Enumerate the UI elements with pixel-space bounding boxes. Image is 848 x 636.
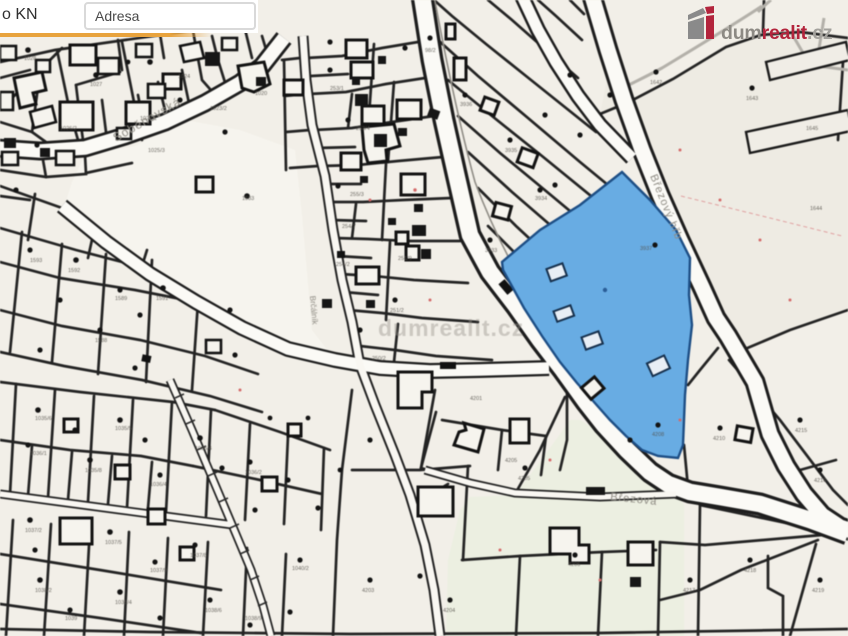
svg-text:1035/4: 1035/4	[195, 446, 212, 452]
svg-text:dumrealit.cz: dumrealit.cz	[378, 315, 524, 341]
svg-text:1020: 1020	[255, 91, 267, 97]
svg-text:1026/2: 1026/2	[60, 126, 77, 132]
svg-text:4217: 4217	[683, 588, 695, 594]
svg-text:4210: 4210	[713, 436, 725, 442]
svg-text:1039: 1039	[65, 616, 77, 622]
svg-text:1645: 1645	[806, 126, 818, 132]
svg-text:251/2: 251/2	[390, 308, 404, 314]
svg-text:1035/8: 1035/8	[85, 468, 102, 474]
svg-text:4206: 4206	[568, 562, 580, 568]
svg-text:255/3: 255/3	[350, 192, 364, 198]
svg-text:1025/1: 1025/1	[140, 116, 157, 122]
svg-text:1038/2: 1038/2	[35, 588, 52, 594]
svg-text:1037/5: 1037/5	[105, 540, 122, 546]
svg-text:1036/1: 1036/1	[30, 451, 47, 457]
svg-text:253/1: 253/1	[330, 86, 344, 92]
svg-text:98/2: 98/2	[425, 48, 436, 54]
svg-text:253/4: 253/4	[356, 126, 370, 132]
svg-text:1035/5: 1035/5	[115, 426, 132, 432]
svg-text:254/2: 254/2	[336, 262, 350, 268]
svg-text:1037/8: 1037/8	[190, 553, 207, 559]
svg-text:1592: 1592	[68, 268, 80, 274]
svg-text:4203: 4203	[362, 588, 374, 594]
svg-text:1025/3: 1025/3	[148, 148, 165, 154]
svg-text:4215: 4215	[795, 428, 807, 434]
svg-text:4204: 4204	[443, 608, 455, 614]
svg-text:4205: 4205	[518, 476, 530, 482]
svg-text:4208: 4208	[652, 432, 664, 438]
svg-text:1644: 1644	[810, 206, 822, 212]
svg-text:1591: 1591	[156, 296, 168, 302]
svg-text:3935: 3935	[505, 148, 517, 154]
svg-text:4218: 4218	[744, 568, 756, 574]
svg-text:dumrealit.cz: dumrealit.cz	[721, 22, 833, 42]
svg-text:3936: 3936	[460, 102, 472, 108]
svg-text:1583: 1583	[242, 196, 254, 202]
svg-text:1024: 1024	[178, 74, 190, 80]
svg-text:1038/6: 1038/6	[205, 608, 222, 614]
svg-text:4216: 4216	[814, 478, 826, 484]
svg-text:1589: 1589	[115, 296, 127, 302]
svg-text:1588: 1588	[95, 338, 107, 344]
svg-text:1037/2: 1037/2	[25, 528, 42, 534]
svg-text:1593: 1593	[30, 258, 42, 264]
svg-text:1643: 1643	[746, 96, 758, 102]
svg-text:1028: 1028	[24, 56, 36, 62]
svg-text:1027: 1027	[90, 82, 102, 88]
svg-text:1038/9: 1038/9	[245, 616, 262, 622]
svg-text:1642: 1642	[650, 80, 662, 86]
svg-text:250/2: 250/2	[372, 356, 386, 362]
svg-text:4201: 4201	[470, 396, 482, 402]
svg-text:4205: 4205	[505, 458, 517, 464]
svg-text:1040/2: 1040/2	[292, 566, 309, 572]
svg-text:3934: 3934	[535, 196, 547, 202]
svg-text:254/7: 254/7	[342, 224, 356, 230]
svg-text:1023/2: 1023/2	[210, 106, 227, 112]
svg-text:251/9: 251/9	[398, 256, 412, 262]
svg-text:1038/4: 1038/4	[115, 600, 132, 606]
svg-text:1037/9: 1037/9	[150, 568, 167, 574]
svg-text:3933: 3933	[485, 248, 497, 254]
svg-text:1036/4: 1036/4	[150, 482, 167, 488]
svg-text:3937: 3937	[640, 246, 652, 252]
svg-text:1035/6: 1035/6	[35, 416, 52, 422]
svg-text:4219: 4219	[812, 588, 824, 594]
svg-text:1036/2: 1036/2	[245, 470, 262, 476]
